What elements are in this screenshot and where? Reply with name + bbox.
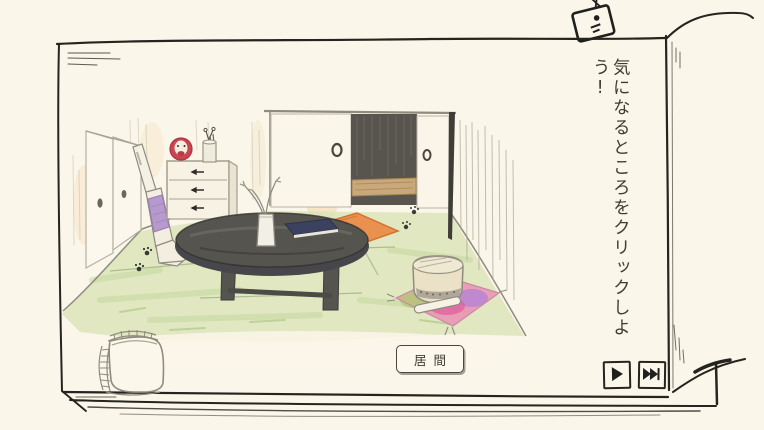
woven-basket[interactable] xyxy=(99,330,163,395)
chest-of-drawers[interactable] xyxy=(167,161,237,219)
page-curl-bottom xyxy=(673,359,745,404)
fast-forward-button[interactable] xyxy=(638,361,666,389)
game-stage: 気になるところをクリックしよう! 居間 xyxy=(0,0,764,430)
pen-cup[interactable] xyxy=(203,127,216,162)
daruma-doll[interactable] xyxy=(170,138,192,160)
room-name-label: 居間 xyxy=(396,345,464,373)
nav-buttons xyxy=(603,361,666,389)
living-room-scene xyxy=(62,111,526,363)
tv-icon xyxy=(569,0,615,42)
door-handle xyxy=(122,190,127,198)
instruction-text: 気になるところをクリックしよう! xyxy=(590,58,630,360)
play-icon xyxy=(605,363,627,385)
page-curl-top xyxy=(667,13,753,38)
fast-forward-icon xyxy=(640,363,662,385)
play-button[interactable] xyxy=(603,361,632,390)
closet-shelf-board xyxy=(352,178,416,196)
door-handle xyxy=(97,198,102,207)
